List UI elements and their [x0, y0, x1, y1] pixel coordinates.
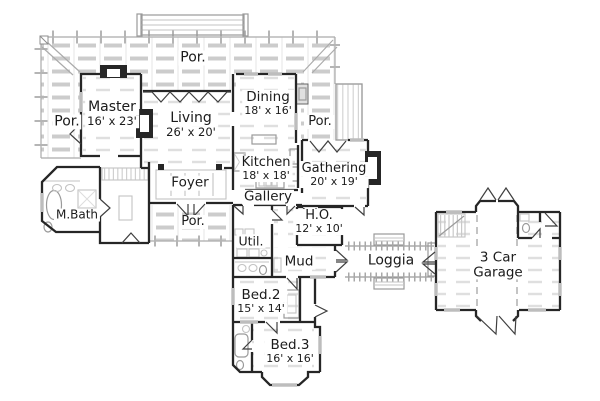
room-label-home-office: H.O.12' x 10' [293, 209, 345, 235]
closet-island [119, 196, 132, 220]
room-label-master-line2: 16' x 23' [85, 115, 139, 127]
room-label-foyer-line1: Foyer [169, 176, 210, 191]
room-label-home-office-line1: H.O. [293, 209, 345, 223]
utility-sink [261, 250, 267, 256]
room-label-porch-left-line1: Por. [52, 114, 81, 129]
room-label-garage: 3 CarGarage [471, 250, 524, 279]
room-label-bed3: Bed.316' x 16' [264, 338, 316, 364]
room-label-living-line2: 26' x 20' [164, 126, 218, 138]
room-label-bed2-line2: 15' x 14' [235, 302, 287, 314]
room-label-mud-line1: Mud [283, 255, 316, 270]
room-label-dining: Dining18' x 16' [242, 90, 294, 116]
room-label-bed2-line1: Bed.2 [235, 288, 287, 303]
sink [243, 326, 250, 333]
sink [238, 265, 246, 272]
room-label-bed3-line1: Bed.3 [264, 338, 316, 353]
room-label-gallery: Gallery [242, 190, 294, 205]
room-label-porch-top-line1: Por. [178, 50, 207, 65]
room-label-porch-right-line1: Por. [306, 115, 334, 129]
room-label-porch-top: Por. [178, 50, 207, 65]
room-label-bed2: Bed.215' x 14' [235, 288, 287, 314]
room-label-master: Master16' x 23' [85, 100, 139, 128]
room-label-utility: Util. [237, 234, 266, 248]
room-label-gallery-line1: Gallery [242, 190, 294, 205]
room-label-porch-right: Por. [306, 115, 334, 129]
room-label-bed3-line2: 16' x 16' [264, 352, 316, 364]
room-label-kitchen-line1: Kitchen [240, 156, 293, 170]
room-label-utility-line1: Util. [237, 234, 266, 248]
room-label-living: Living26' x 20' [164, 111, 218, 139]
sink [53, 185, 62, 192]
room-label-foyer: Foyer [169, 176, 210, 191]
room-label-mbath-line1: M.Bath [54, 209, 100, 222]
room-label-garage-line2: Garage [471, 265, 524, 280]
room-label-gathering-line1: Gathering [300, 162, 369, 176]
room-label-garage-line1: 3 Car [471, 250, 524, 265]
room-label-kitchen: Kitchen18' x 18' [240, 156, 293, 182]
room-label-loggia-line1: Loggia [366, 253, 416, 268]
sink [66, 185, 75, 192]
room-label-dining-line2: 18' x 16' [242, 104, 294, 116]
room-label-master-line1: Master [85, 100, 139, 115]
room-label-kitchen-line2: 18' x 18' [240, 170, 293, 182]
room-label-porch-front-line1: Por. [179, 215, 207, 229]
room-label-living-line1: Living [164, 111, 218, 126]
room-label-home-office-line2: 12' x 10' [293, 223, 345, 235]
room-label-loggia: Loggia [366, 253, 416, 268]
room-label-mud: Mud [283, 255, 316, 270]
room-label-gathering-line2: 20' x 19' [300, 176, 369, 188]
room-label-dining-line1: Dining [242, 90, 294, 105]
dryer [249, 249, 259, 257]
floor-plan: Por.Por.Master16' x 23'Living26' x 20'Di… [0, 0, 600, 401]
room-label-gathering: Gathering20' x 19' [300, 162, 369, 188]
room-label-porch-left: Por. [52, 114, 81, 129]
toilet [260, 266, 267, 275]
washer [237, 249, 247, 257]
room-label-mbath: M.Bath [54, 209, 100, 222]
sink [249, 265, 257, 272]
room-label-porch-front: Por. [179, 215, 207, 229]
